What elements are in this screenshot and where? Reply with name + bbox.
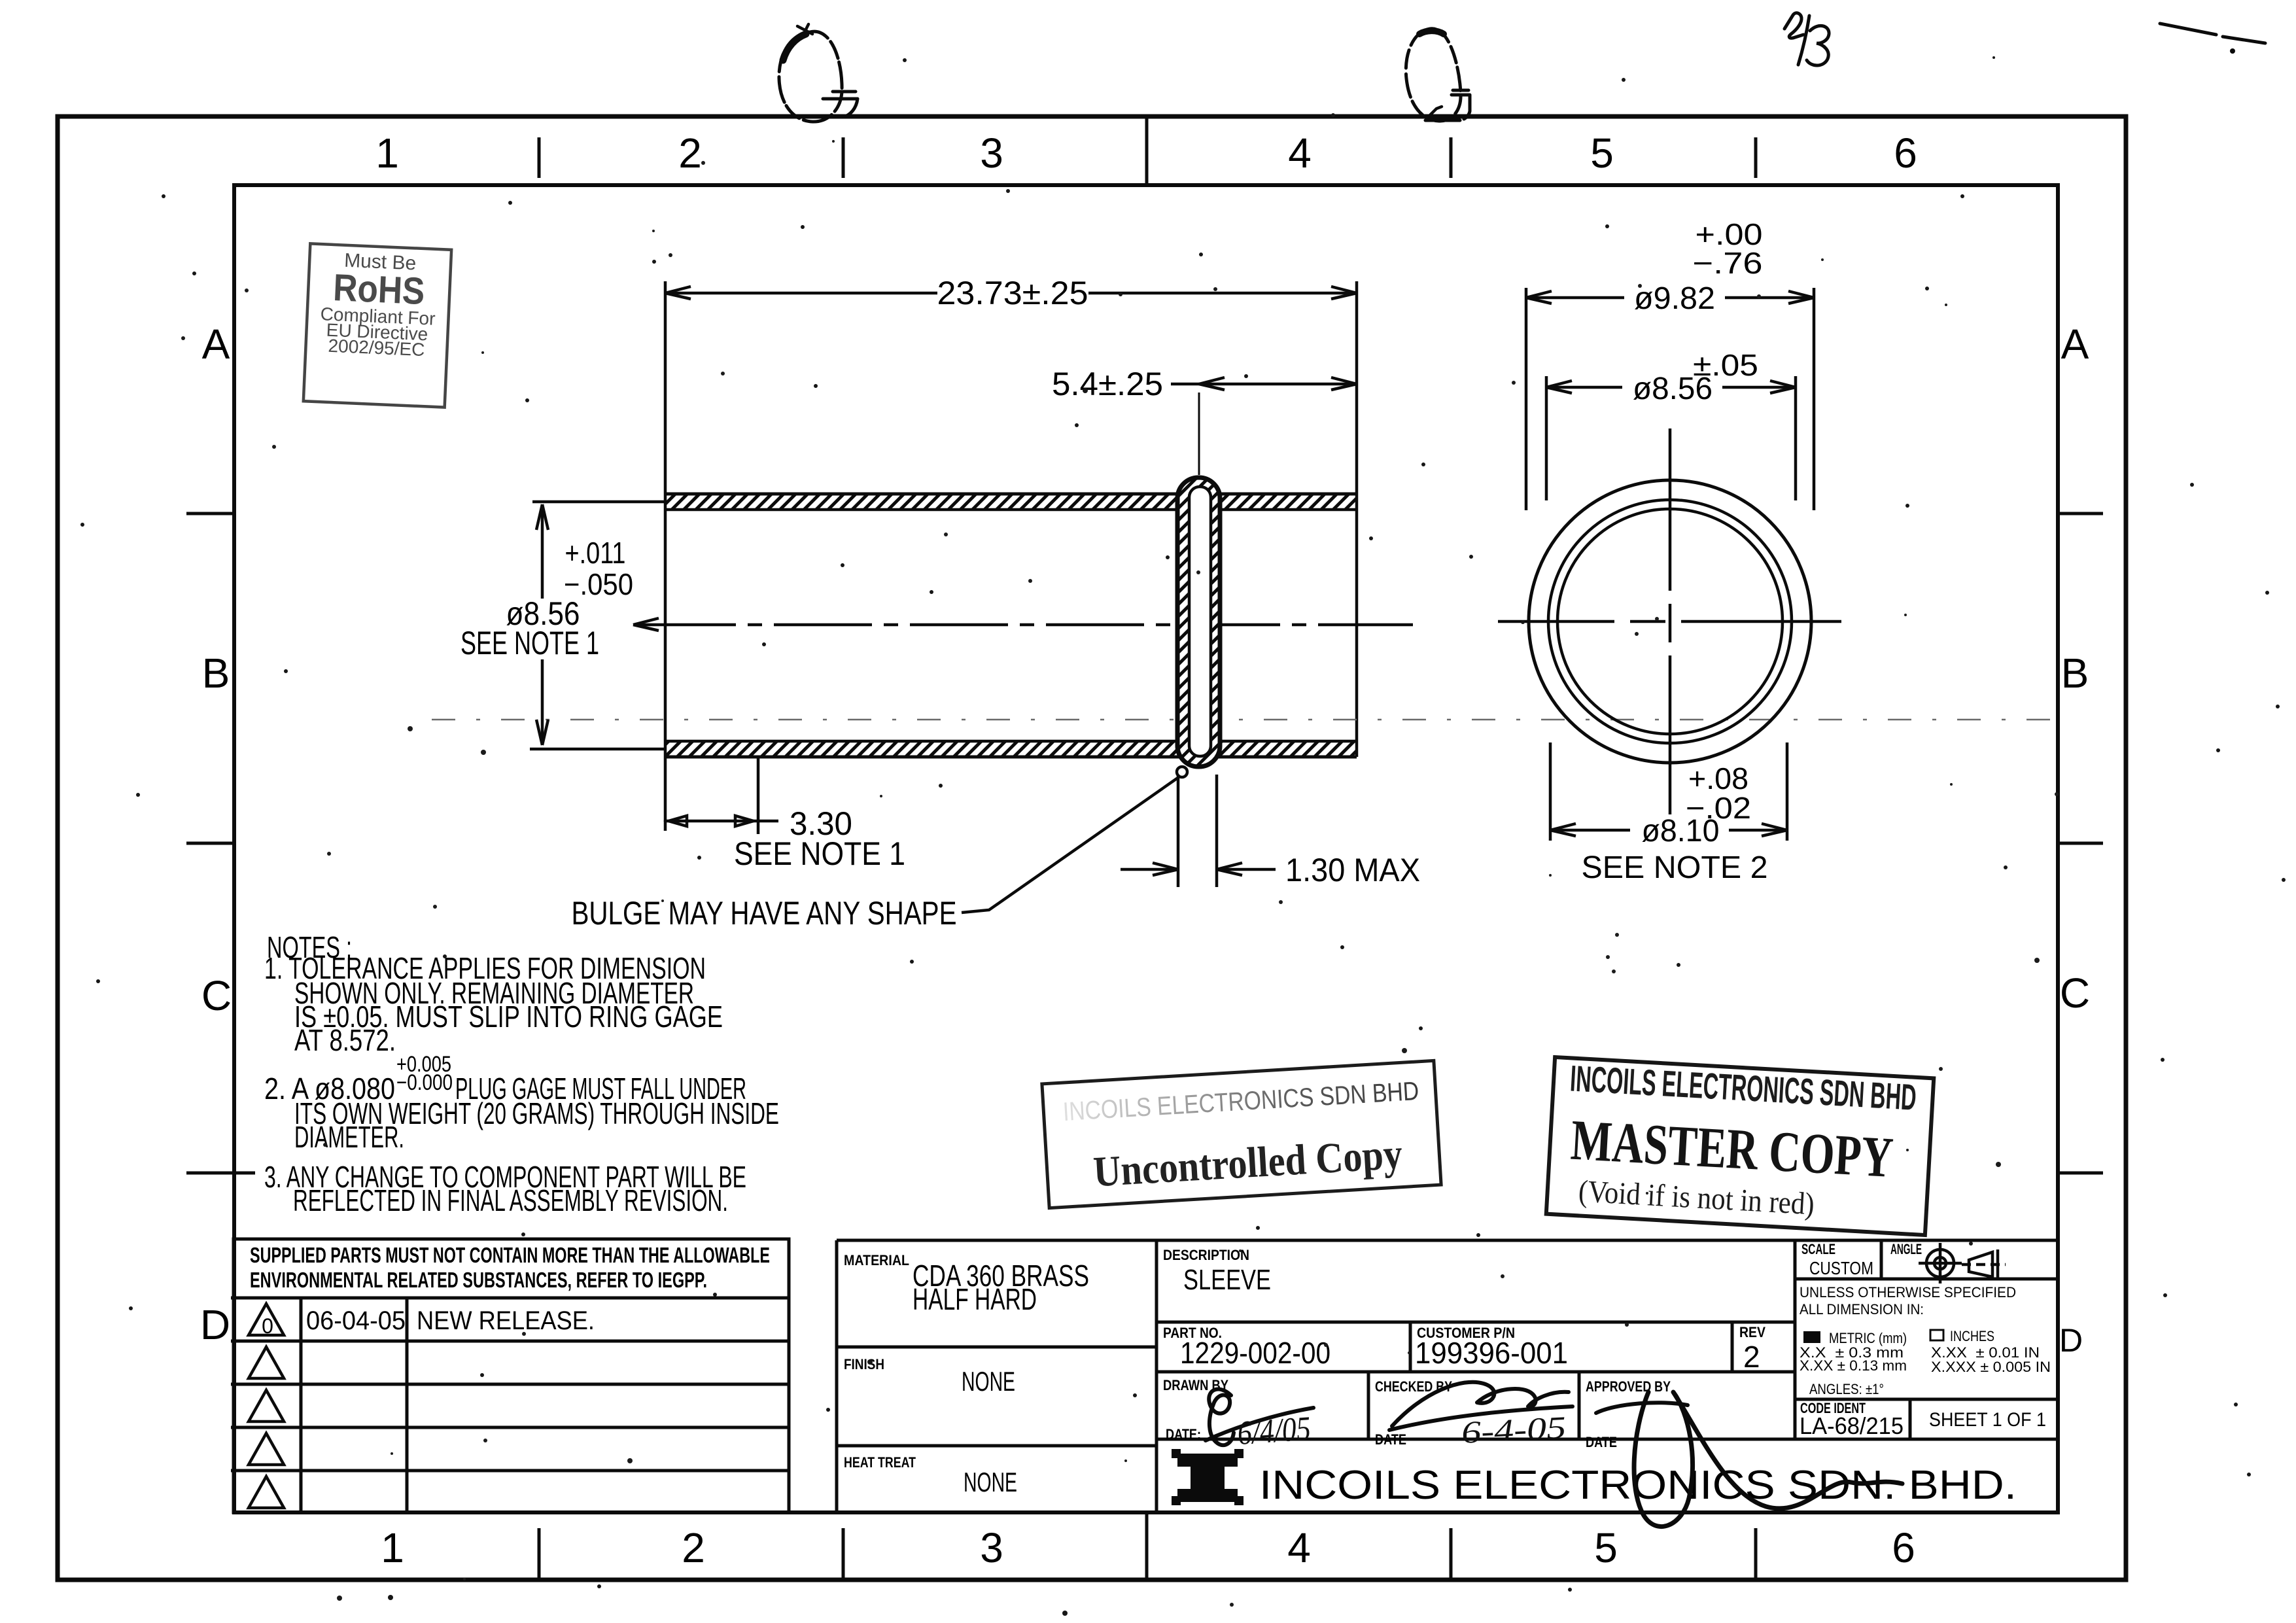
svg-text:5.4±.25: 5.4±.25 <box>1052 366 1163 402</box>
svg-text:CHECKED BY: CHECKED BY <box>1375 1378 1452 1395</box>
svg-text:D: D <box>200 1301 230 1348</box>
svg-text:SCALE: SCALE <box>1801 1241 1835 1257</box>
svg-text:2: 2 <box>678 130 702 177</box>
svg-text:APPROVED BY: APPROVED BY <box>1586 1378 1671 1395</box>
svg-text:LA-68/215: LA-68/215 <box>1800 1412 1904 1439</box>
svg-text:NEW RELEASE.: NEW RELEASE. <box>417 1306 595 1335</box>
svg-text:D: D <box>2059 1322 2083 1359</box>
svg-text:ø8.10: ø8.10 <box>1642 814 1720 848</box>
svg-text:2: 2 <box>682 1524 705 1571</box>
svg-text:3: 3 <box>980 130 1003 177</box>
svg-text:+.011: +.011 <box>565 536 626 570</box>
svg-text:ø9.82: ø9.82 <box>1634 281 1715 316</box>
svg-text:NONE: NONE <box>964 1467 1017 1497</box>
svg-text:AT 8.572.: AT 8.572. <box>294 1023 396 1057</box>
svg-text:X.XXX ± 0.005 IN: X.XXX ± 0.005 IN <box>1931 1359 2051 1375</box>
svg-text:1229-002-00: 1229-002-00 <box>1180 1336 1331 1370</box>
svg-text:6/4/05: 6/4/05 <box>1236 1410 1312 1452</box>
svg-text:BULGE MAY HAVE ANY SHAPE: BULGE MAY HAVE ANY SHAPE <box>572 895 957 932</box>
svg-text:HALF HARD: HALF HARD <box>913 1282 1037 1316</box>
svg-text:NONE: NONE <box>962 1366 1015 1397</box>
svg-text:6: 6 <box>1892 1524 1915 1571</box>
svg-text:ENVIRONMENTAL RELATED SUBSTANC: ENVIRONMENTAL RELATED SUBSTANCES, REFER … <box>250 1268 707 1292</box>
svg-text:1.30 MAX: 1.30 MAX <box>1285 852 1420 888</box>
svg-text:C: C <box>2060 969 2090 1017</box>
svg-text:REV: REV <box>1739 1324 1765 1340</box>
svg-text:ø8.56: ø8.56 <box>1633 372 1713 406</box>
svg-text:SEE NOTE 1: SEE NOTE 1 <box>461 625 599 661</box>
svg-text:1: 1 <box>381 1524 404 1571</box>
svg-text:CUSTOM: CUSTOM <box>1809 1258 1873 1278</box>
svg-text:0: 0 <box>262 1314 273 1338</box>
svg-text:23.73±.25: 23.73±.25 <box>937 275 1088 311</box>
svg-text:5: 5 <box>1594 1524 1618 1571</box>
svg-text:INCHES: INCHES <box>1950 1328 1994 1344</box>
svg-text:−.76: −.76 <box>1693 246 1763 280</box>
svg-text:SEE NOTE 2: SEE NOTE 2 <box>1582 850 1768 885</box>
svg-text:B: B <box>202 650 230 697</box>
svg-text:A: A <box>202 321 230 368</box>
svg-text:6-4-05: 6-4-05 <box>1461 1410 1567 1450</box>
svg-text:HEAT TREAT: HEAT TREAT <box>844 1454 916 1471</box>
svg-text:DATE: DATE <box>1375 1431 1406 1448</box>
svg-text:SEE NOTE 1: SEE NOTE 1 <box>734 835 905 872</box>
svg-text:B: B <box>2061 650 2089 697</box>
svg-text:−0.000: −0.000 <box>396 1070 453 1095</box>
svg-text:ALL DIMENSION IN:: ALL DIMENSION IN: <box>1800 1301 1924 1318</box>
svg-text:DATE:: DATE: <box>1166 1426 1201 1442</box>
svg-text:REFLECTED IN FINAL ASSEMBLY RE: REFLECTED IN FINAL ASSEMBLY REVISION. <box>293 1183 728 1217</box>
svg-text:SLEEVE: SLEEVE <box>1183 1264 1271 1296</box>
svg-text:C: C <box>201 972 232 1019</box>
svg-text:DESCRIPTION: DESCRIPTION <box>1163 1247 1249 1263</box>
svg-text:5: 5 <box>1590 130 1614 177</box>
svg-text:ANGLE: ANGLE <box>1890 1241 1922 1257</box>
svg-text:2: 2 <box>1743 1340 1760 1374</box>
svg-text:X.XX ± 0.13 mm: X.XX ± 0.13 mm <box>1800 1357 1907 1374</box>
svg-text:3: 3 <box>980 1524 1003 1571</box>
svg-text:FINISH: FINISH <box>844 1356 884 1372</box>
svg-text:4: 4 <box>1287 1524 1311 1571</box>
svg-text:199396-001: 199396-001 <box>1415 1336 1568 1370</box>
svg-text:UNLESS OTHERWISE SPECIFIED: UNLESS OTHERWISE SPECIFIED <box>1800 1284 2016 1300</box>
svg-text:DATE: DATE <box>1586 1434 1617 1450</box>
svg-text:SHEET 1 OF 1: SHEET 1 OF 1 <box>1929 1409 2046 1431</box>
svg-text:ANGLES: ±1°: ANGLES: ±1° <box>1809 1381 1884 1397</box>
svg-text:1: 1 <box>375 130 399 177</box>
svg-text:A: A <box>2061 321 2089 368</box>
svg-text:6: 6 <box>1894 130 1917 177</box>
svg-text:06-04-05: 06-04-05 <box>306 1306 406 1335</box>
svg-text:SUPPLIED PARTS MUST NOT CONTAI: SUPPLIED PARTS MUST NOT CONTAIN MORE THA… <box>250 1243 770 1267</box>
svg-text:MATERIAL: MATERIAL <box>844 1252 909 1268</box>
svg-text:DIAMETER.: DIAMETER. <box>294 1120 404 1154</box>
svg-text:2002/95/EC: 2002/95/EC <box>328 336 425 360</box>
svg-text:4: 4 <box>1288 130 1312 177</box>
